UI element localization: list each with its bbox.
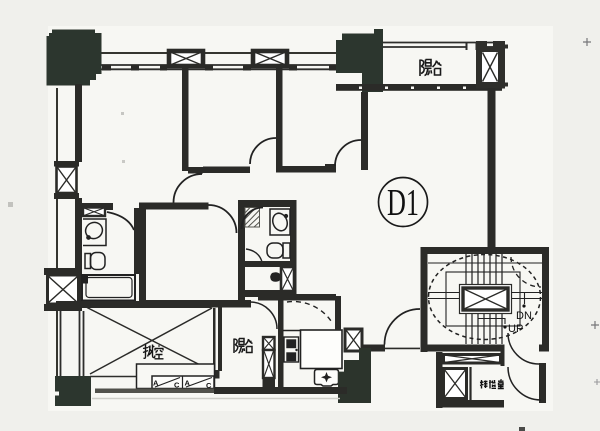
- svg-text:C: C: [174, 381, 180, 390]
- svg-text:A: A: [153, 379, 159, 388]
- svg-text:DN: DN: [516, 310, 532, 322]
- svg-text:D1: D1: [387, 182, 419, 224]
- svg-text:UP: UP: [508, 323, 523, 335]
- svg-text:A: A: [185, 379, 191, 388]
